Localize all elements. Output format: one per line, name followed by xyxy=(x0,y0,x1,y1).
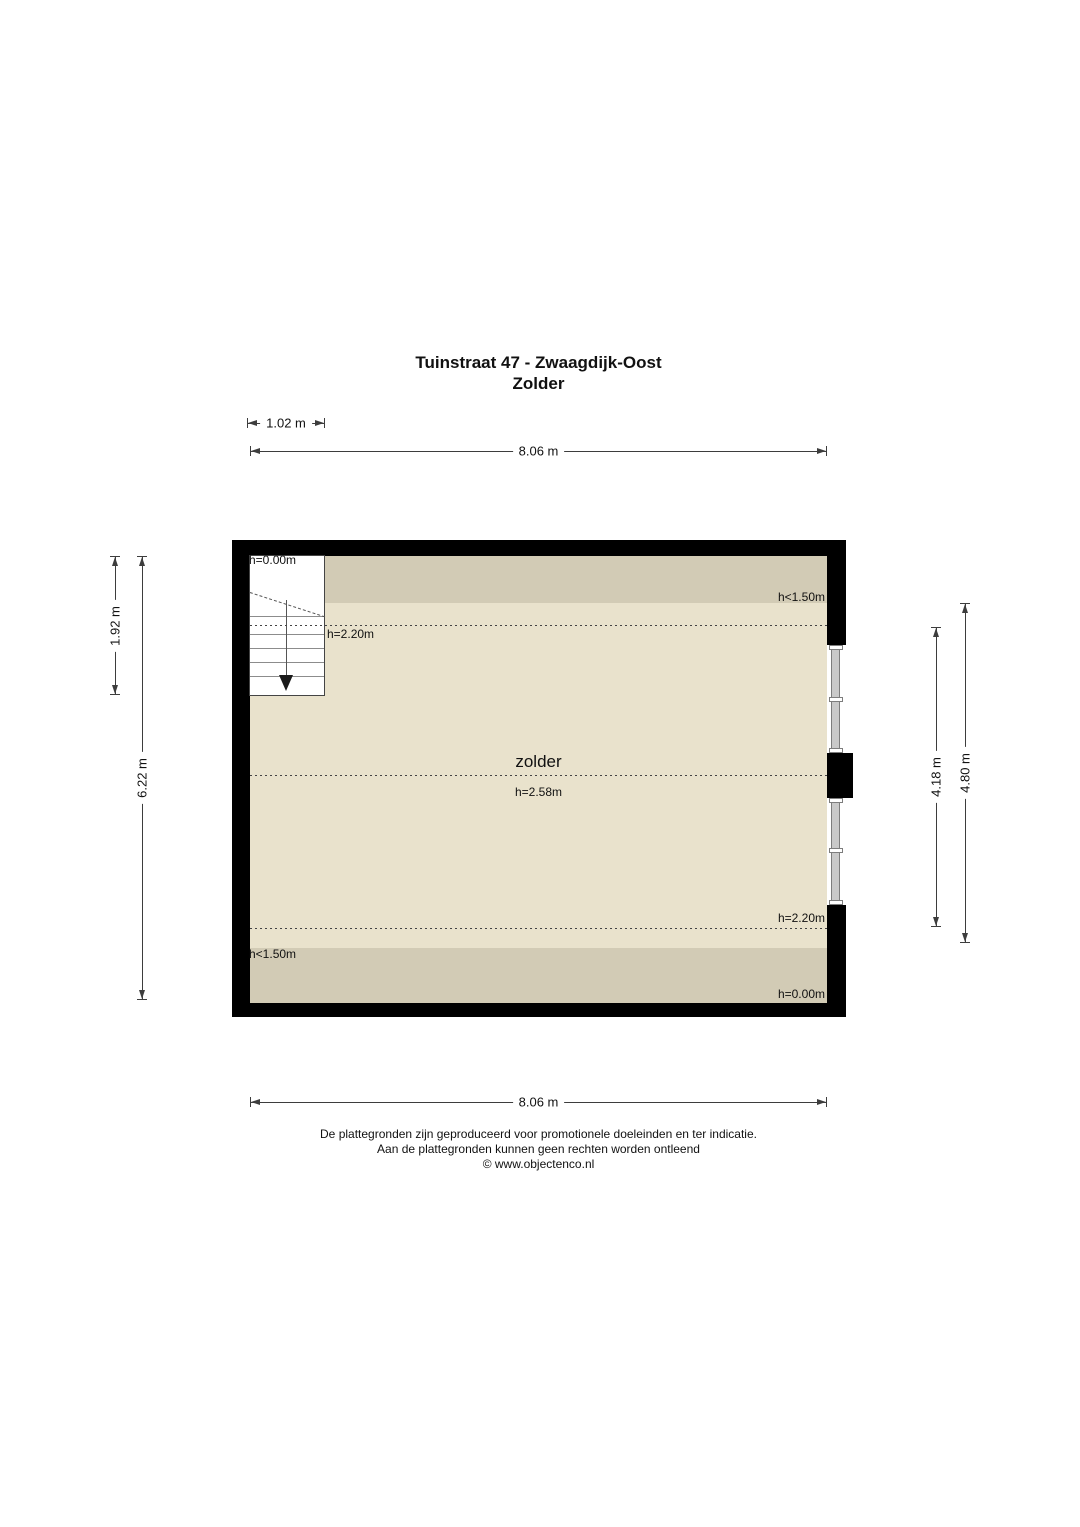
arrow-down-icon xyxy=(139,990,145,999)
arrow-right-icon xyxy=(315,420,324,426)
height-label-stair: h=2.20m xyxy=(327,627,374,641)
title-address: Tuinstraat 47 - Zwaagdijk-Oost xyxy=(0,352,1077,373)
arrow-right-icon xyxy=(817,448,826,454)
arrow-up-icon xyxy=(933,628,939,637)
window-divider xyxy=(829,697,843,702)
stair-direction-line xyxy=(286,600,287,678)
arrow-left-icon xyxy=(248,420,257,426)
dimension-label: 4.80 m xyxy=(958,747,973,799)
dimension-top-width: 8.06 m xyxy=(250,444,827,458)
window-divider xyxy=(829,645,843,650)
stair-down-arrow-icon xyxy=(279,675,293,691)
window-lower xyxy=(827,798,846,905)
arrow-up-icon xyxy=(962,604,968,613)
disclaimer-line-2: Aan de plattegronden kunnen geen rechten… xyxy=(0,1142,1077,1157)
dimension-right-inner: 4.18 m xyxy=(929,627,943,927)
dimension-right-outer: 4.80 m xyxy=(958,603,972,943)
arrow-down-icon xyxy=(112,685,118,694)
headroom-dotted-line-lower xyxy=(250,928,827,929)
height-label-lower-right: h=2.20m xyxy=(778,911,825,925)
dimension-bottom-width: 8.06 m xyxy=(250,1095,827,1109)
height-label-bottom-left: h<1.50m xyxy=(249,947,296,961)
floorplan-outline: h=0.00m h<1.50m h=2.20m zolder h=2.58m h… xyxy=(232,540,846,1017)
disclaimer-line-1: De plattegronden zijn geproduceerd voor … xyxy=(0,1127,1077,1142)
headroom-dotted-line-middle xyxy=(250,775,827,776)
dimension-tick xyxy=(137,999,147,1000)
stair-tread xyxy=(250,616,324,617)
title-floor: Zolder xyxy=(0,373,1077,394)
dimension-label: 8.06 m xyxy=(513,1095,565,1110)
arrow-right-icon xyxy=(817,1099,826,1105)
stair-headroom-dashed-line xyxy=(250,592,325,617)
dimension-label: 8.06 m xyxy=(513,444,565,459)
dimension-tick xyxy=(826,1097,827,1107)
copyright-line: © www.objectenco.nl xyxy=(0,1157,1077,1172)
stair-tread xyxy=(250,648,324,649)
page-title: Tuinstraat 47 - Zwaagdijk-Oost Zolder xyxy=(0,352,1077,394)
stair-tread xyxy=(250,634,324,635)
low-headroom-zone-bottom xyxy=(250,948,827,1003)
disclaimer: De plattegronden zijn geproduceerd voor … xyxy=(0,1127,1077,1172)
dimension-label: 1.92 m xyxy=(108,600,123,652)
dimension-tick xyxy=(324,418,325,428)
arrow-down-icon xyxy=(933,917,939,926)
dimension-tick xyxy=(826,446,827,456)
height-label-bottom-right: h=0.00m xyxy=(778,987,825,1001)
room-height-label: h=2.58m xyxy=(515,785,562,799)
window-divider xyxy=(829,848,843,853)
dimension-tick xyxy=(931,926,941,927)
room-label: zolder xyxy=(515,752,561,772)
arrow-left-icon xyxy=(251,1099,260,1105)
arrow-up-icon xyxy=(112,557,118,566)
window-divider xyxy=(829,900,843,905)
headroom-dotted-line-upper xyxy=(250,625,827,626)
dimension-stair-width: 1.02 m xyxy=(247,416,325,430)
dimension-tick xyxy=(110,694,120,695)
dimension-label: 1.02 m xyxy=(260,416,312,431)
window-upper xyxy=(827,645,846,753)
arrow-up-icon xyxy=(139,557,145,566)
dimension-left-upper: 1.92 m xyxy=(108,556,122,695)
height-label-stair-top: h=0.00m xyxy=(249,553,296,567)
arrow-left-icon xyxy=(251,448,260,454)
dimension-left-full: 6.22 m xyxy=(135,556,149,1000)
low-headroom-zone-top xyxy=(250,556,827,603)
stair-tread xyxy=(250,662,324,663)
floorplan-page: Tuinstraat 47 - Zwaagdijk-Oost Zolder 1.… xyxy=(0,0,1080,1527)
arrow-down-icon xyxy=(962,933,968,942)
dimension-label: 6.22 m xyxy=(135,752,150,804)
wall-pier xyxy=(827,753,853,798)
window-divider xyxy=(829,798,843,803)
dimension-label: 4.18 m xyxy=(929,751,944,803)
room-interior: h=0.00m h<1.50m h=2.20m zolder h=2.58m h… xyxy=(250,556,827,1003)
dimension-tick xyxy=(960,942,970,943)
height-label-top-right: h<1.50m xyxy=(778,590,825,604)
